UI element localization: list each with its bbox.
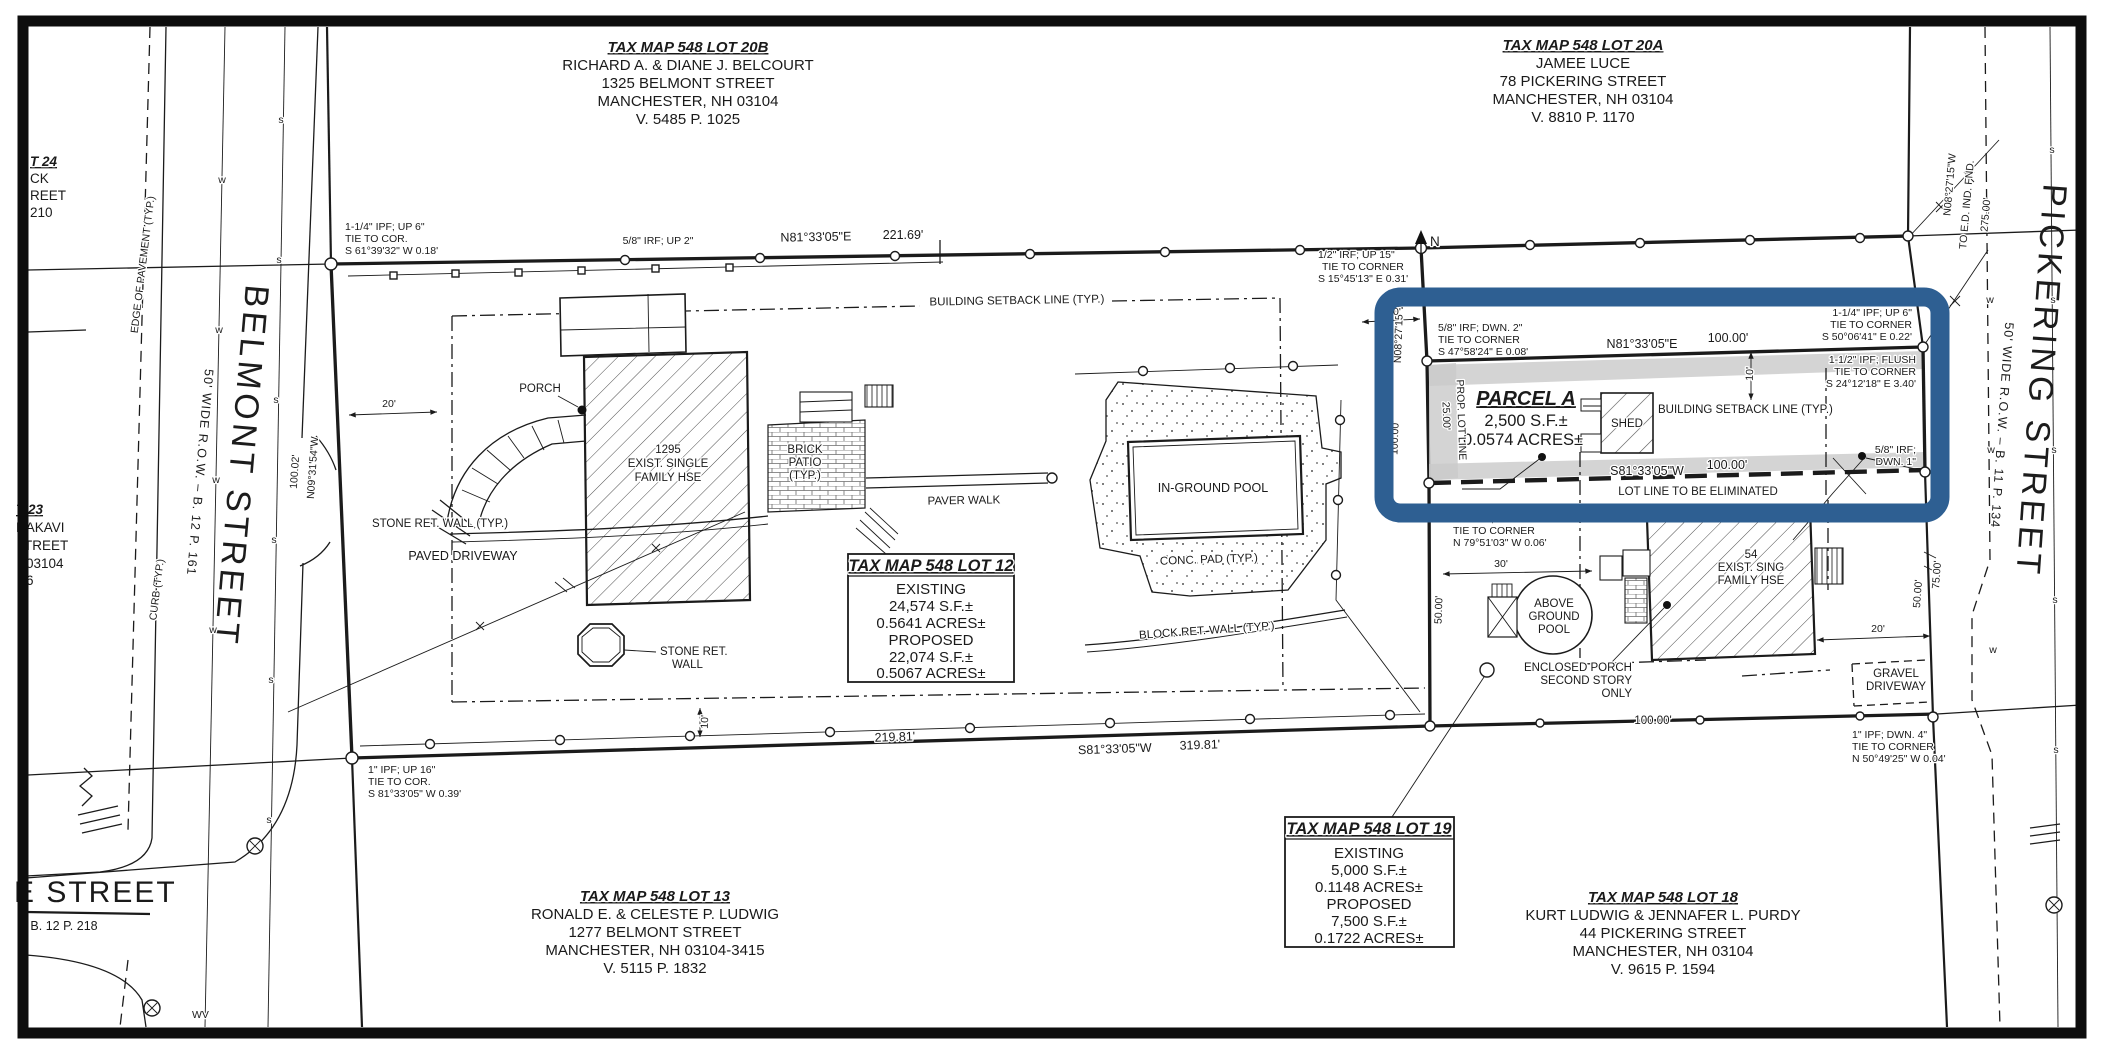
note-ipf-up6-nw: 1-1/4" IPF; UP 6": [345, 221, 425, 233]
lot19-area-box: TAX MAP 548 LOT 19 EXISTING 5,000 S.F.± …: [1285, 817, 1454, 947]
sewer-mark: s: [278, 114, 283, 126]
svg-text:TIE TO CORNER: TIE TO CORNER: [1322, 261, 1404, 273]
lot20a-title: TAX MAP 548 LOT 20A: [1503, 37, 1664, 54]
pool-area: [1075, 362, 1420, 713]
svg-text:N 79°51'03" W 0.06': N 79°51'03" W 0.06': [1453, 537, 1547, 549]
north-arrow-icon: [1415, 230, 1427, 244]
brick-patio-label: BRICK: [787, 444, 822, 456]
svg-text:(TYP.): (TYP.): [789, 470, 821, 482]
wall-post-markers: [390, 264, 733, 279]
lot18-line: V. 9615 P. 1594: [1611, 961, 1715, 978]
dim-30-lot19: 30': [1494, 558, 1508, 570]
pickering-row-label: 50' WIDE R.O.W. – B. 11 P. 134: [1988, 322, 2016, 529]
bearing-s81-parcel: S81°33'05"W: [1610, 464, 1684, 478]
note-ipf-flush: 1-1/2" IPF; FLUSH: [1829, 354, 1916, 366]
svg-text:DRIVEWAY: DRIVEWAY: [1866, 681, 1926, 693]
stone-wall-label: STONE RET. WALL (TYP.): [372, 518, 508, 530]
svg-text:s: s: [271, 534, 276, 546]
svg-text:PATIO: PATIO: [789, 457, 822, 469]
dim-20-lot12: 20': [382, 398, 396, 410]
svg-text:210: 210: [30, 205, 53, 220]
svg-text:S 24°12'18" E 3.40': S 24°12'18" E 3.40': [1826, 378, 1916, 390]
dist-10002: 100.02': [288, 454, 302, 489]
e-street-row-label: – B. 12 P. 218: [20, 919, 98, 933]
svg-text:TIE TO CORNER: TIE TO CORNER: [1830, 319, 1912, 331]
svg-text:ONLY: ONLY: [1602, 688, 1633, 700]
svg-text:s: s: [273, 394, 278, 406]
svg-text:TREET: TREET: [24, 538, 68, 553]
inground-pool-label: IN-GROUND POOL: [1158, 481, 1268, 495]
svg-text:s: s: [2051, 444, 2056, 456]
paver-walk-label: PAVER WALK: [928, 494, 1001, 507]
lot18-line: MANCHESTER, NH 03104: [1573, 943, 1754, 960]
lot20b-title: TAX MAP 548 LOT 20B: [608, 39, 769, 56]
bearing-n08-pickering: N08°27'15"W: [1941, 153, 1958, 216]
lot20b-line: V. 5485 P. 1025: [636, 111, 740, 128]
dim-10-parcel: 10': [1744, 367, 1756, 381]
svg-text:TIE TO COR.: TIE TO COR.: [345, 233, 408, 245]
to-ed-ind-fnd: TO E.D. IND. FND.: [1957, 160, 1977, 250]
svg-text:w: w: [214, 324, 223, 336]
lot19-box-row: 5,000 S.F.±: [1331, 862, 1407, 879]
dim-20-lot18: 20': [1871, 623, 1885, 635]
svg-text:REET: REET: [30, 188, 66, 203]
svg-text:TIE TO COR.: TIE TO COR.: [368, 776, 431, 788]
parcel-a-name: PARCEL A: [1476, 388, 1576, 410]
svg-text:FAMILY HSE: FAMILY HSE: [1718, 575, 1785, 587]
svg-text:S 61°39'32" W 0.18': S 61°39'32" W 0.18': [345, 245, 438, 257]
lot12-area-box: TAX MAP 548 LOT 12 EXISTING 24,574 S.F.±…: [848, 554, 1014, 682]
dim-25-west: 25.00': [1440, 402, 1453, 431]
wv-label: WV: [192, 1009, 209, 1021]
svg-text:s: s: [266, 814, 271, 826]
lot20b-line: 1325 BELMONT STREET: [601, 75, 774, 92]
svg-text:S 81°33'05" W 0.39': S 81°33'05" W 0.39': [368, 788, 461, 800]
svg-text:w: w: [211, 474, 220, 486]
note-irf-dwn2: 5/8" IRF; DWN. 2": [1438, 322, 1523, 334]
lot12-box-row: 24,574 S.F.±: [889, 598, 973, 615]
svg-text:s: s: [276, 254, 281, 266]
svg-text:s: s: [2053, 744, 2058, 756]
svg-text:s: s: [2052, 594, 2057, 606]
svg-text:TIE TO CORNER: TIE TO CORNER: [1453, 525, 1535, 537]
setback-label-parcel-a: BUILDING SETBACK LINE (TYP.): [1658, 404, 1833, 416]
svg-text:N 50°49'25" W 0.04': N 50°49'25" W 0.04': [1852, 753, 1946, 765]
paved-driveway-label: PAVED DRIVEWAY: [408, 549, 518, 563]
svg-text:S 47°58'24" E 0.08': S 47°58'24" E 0.08': [1438, 346, 1528, 358]
lot20b-line: MANCHESTER, NH 03104: [598, 93, 779, 110]
porch-label: PORCH: [519, 383, 561, 395]
lot13-line: 1277 BELMONT STREET: [568, 924, 741, 941]
lot12-box-title: TAX MAP 548 LOT 12: [848, 557, 1013, 575]
house12-label: 1295: [655, 444, 681, 456]
lot12-box-row: EXISTING: [896, 581, 966, 598]
lot20a-line: JAMEE LUCE: [1536, 55, 1630, 72]
dist-50-east: 50.00': [1911, 579, 1925, 608]
enclosed-porch-label: ENCLOSED PORCH: [1524, 662, 1632, 674]
parcel-a-sf: 2,500 S.F.±: [1484, 412, 1567, 430]
svg-text:w: w: [1988, 644, 1997, 656]
lot20b-line: RICHARD A. & DIANE J. BELCOURT: [562, 57, 813, 74]
svg-text:TIE TO CORNER: TIE TO CORNER: [1852, 741, 1934, 753]
svg-text:w: w: [1985, 294, 1994, 306]
bearing-n81-parcel: N81°33'05"E: [1607, 337, 1678, 351]
svg-text:S 50°06'41" E 0.22': S 50°06'41" E 0.22': [1822, 331, 1912, 343]
above-pool-label: ABOVE: [1534, 598, 1574, 610]
svg-text:WALL: WALL: [672, 659, 703, 671]
lot-line-eliminated-label: LOT LINE TO BE ELIMINATED: [1618, 486, 1778, 498]
lot20a-line: MANCHESTER, NH 03104: [1493, 91, 1674, 108]
gravel-driveway-label: GRAVEL: [1873, 668, 1919, 680]
svg-text:CK: CK: [30, 171, 49, 186]
lot19-box-title: TAX MAP 548 LOT 19: [1286, 820, 1452, 838]
svg-text:TIE TO CORNER: TIE TO CORNER: [1834, 366, 1916, 378]
setback-label-lot12: BUILDING SETBACK LINE (TYP.): [929, 293, 1104, 308]
utility-pole-icon: [1480, 663, 1494, 677]
note-irf-up15: 1/2" IRF; UP 15": [1318, 249, 1395, 261]
dist-50-west: 50.00': [1433, 596, 1446, 625]
dist-21981: 219.81': [874, 729, 915, 744]
steps: [865, 385, 893, 407]
dist-100-lot18: 100.00': [1634, 715, 1671, 727]
svg-text:TIE TO CORNER: TIE TO CORNER: [1438, 334, 1520, 346]
lot13-title: TAX MAP 548 LOT 13: [580, 888, 731, 905]
dim-10-bottom: 10': [699, 715, 711, 729]
lot18-title: TAX MAP 548 LOT 18: [1588, 889, 1739, 906]
site-plan-drawing: TAX MAP 548 LOT 20B RICHARD A. & DIANE J…: [0, 0, 2104, 1054]
plat-site-plan: TAX MAP 548 LOT 20B RICHARD A. & DIANE J…: [0, 0, 2104, 1054]
svg-text:EXIST. SINGLE: EXIST. SINGLE: [628, 458, 709, 470]
svg-text:s: s: [2050, 294, 2055, 306]
dist-22169: 221.69': [883, 228, 924, 242]
porch-outline: [560, 294, 686, 356]
water-mark: w: [217, 174, 226, 186]
lot20a-line: 78 PICKERING STREET: [1500, 73, 1667, 90]
dist-27500: 275.00': [1979, 197, 1994, 232]
curb-label: CURB (TYP.): [147, 558, 166, 621]
lot13-line: MANCHESTER, NH 03104-3415: [545, 942, 764, 959]
svg-text:s: s: [2049, 144, 2054, 156]
svg-text:SECOND STORY: SECOND STORY: [1540, 675, 1632, 687]
house54-label: 54: [1745, 549, 1758, 561]
lot13-line: RONALD E. & CELESTE P. LUDWIG: [531, 906, 779, 923]
lot18-line: KURT LUDWIG & JENNAFER L. PURDY: [1525, 907, 1800, 924]
svg-text:POOL: POOL: [1538, 624, 1571, 636]
stone-wall2-label: STONE RET.: [660, 646, 728, 658]
note-ipf-up16: 1" IPF; UP 16": [368, 764, 436, 776]
dist-31981: 319.81': [1179, 737, 1220, 752]
lot18-line: 44 PICKERING STREET: [1580, 925, 1747, 942]
deck-steps: [800, 392, 852, 422]
lot20a-line: V. 8810 P. 1170: [1531, 109, 1634, 126]
dist-75: 75.00': [1930, 560, 1944, 589]
bearing-s81-bottom: S81°33'05"W: [1078, 741, 1152, 758]
e-street-label: E STREET: [14, 876, 177, 909]
lot12-box-row: 0.5641 ACRES±: [876, 615, 985, 632]
svg-text:w: w: [208, 624, 217, 636]
lot13-line: V. 5115 P. 1832: [603, 960, 706, 977]
note-ipf-dwn4: 1" IPF; DWN. 4": [1852, 729, 1927, 741]
dist-100-bottom: 100.00': [1707, 458, 1748, 472]
pickering-street-label: PICKERING STREET: [2008, 183, 2073, 579]
lot19-box-row: EXISTING: [1334, 845, 1404, 862]
lot12-box-row: PROPOSED: [888, 632, 973, 649]
belmont-row-label: 50' WIDE R.O.W. – B. 12 P. 161: [184, 369, 216, 577]
edge-of-pavement-label: EDGE OF PAVEMENT (TYP.): [129, 195, 158, 334]
svg-text:s: s: [268, 674, 273, 686]
svg-text:S 15°45'13" E 0.31': S 15°45'13" E 0.31': [1318, 273, 1408, 285]
dist-100-top: 100.00': [1708, 331, 1749, 345]
svg-text:03104: 03104: [26, 556, 64, 571]
lot12-box-row: 0.5067 ACRES±: [876, 665, 985, 682]
note-ipf-up6-ne: 1-1/4" IPF; UP 6": [1832, 307, 1912, 319]
parcel-a-acres: 0.0574 ACRES±: [1463, 431, 1583, 449]
svg-text:GROUND: GROUND: [1528, 611, 1579, 623]
shed-label: SHED: [1611, 418, 1643, 430]
svg-text:FAMILY HSE: FAMILY HSE: [635, 472, 702, 484]
lot19-box-row: 7,500 S.F.±: [1331, 913, 1407, 930]
svg-text:w: w: [1986, 444, 1995, 456]
north-label: N: [1430, 234, 1440, 249]
bearing-n81-top: N81°33'05"E: [780, 229, 851, 244]
svg-text:EXIST. SING: EXIST. SING: [1718, 562, 1785, 574]
lot24-partial: T 24: [30, 154, 58, 169]
note-irf-dwn1: 5/8" IRF;: [1875, 444, 1916, 456]
note-irf-up2: 5/8" IRF; UP 2": [623, 235, 694, 247]
bearing-n09: N09°31'54"W: [305, 436, 321, 499]
lot19-box-row: 0.1148 ACRES±: [1315, 879, 1423, 896]
lot19-box-row: 0.1722 ACRES±: [1314, 930, 1423, 947]
lot19-box-row: PROPOSED: [1326, 896, 1411, 913]
lot12-box-row: 22,074 S.F.±: [889, 649, 973, 666]
svg-text:DWN. 1": DWN. 1": [1876, 456, 1917, 468]
